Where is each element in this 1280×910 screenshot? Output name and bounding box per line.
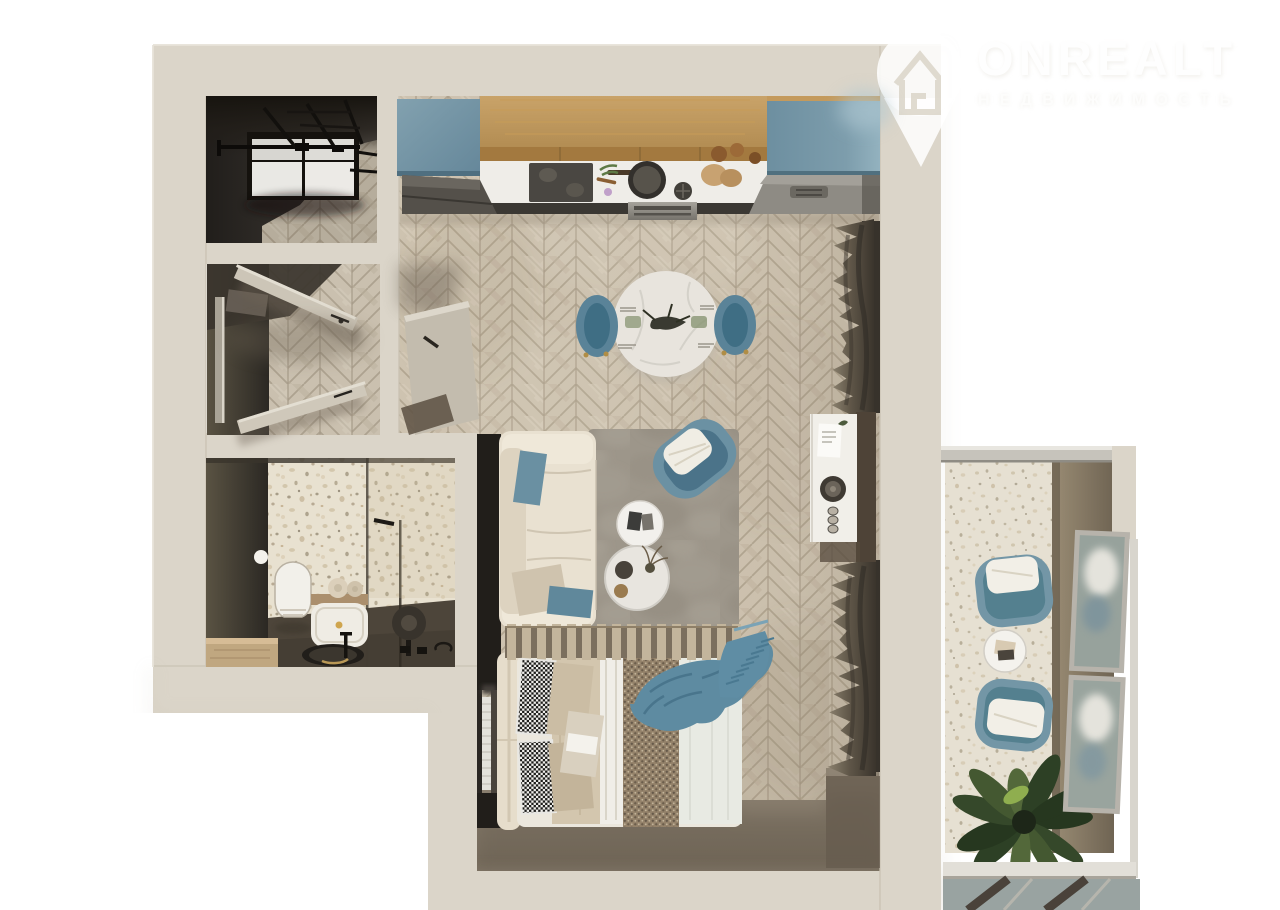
- svg-text:ONREALT: ONREALT: [977, 32, 1234, 85]
